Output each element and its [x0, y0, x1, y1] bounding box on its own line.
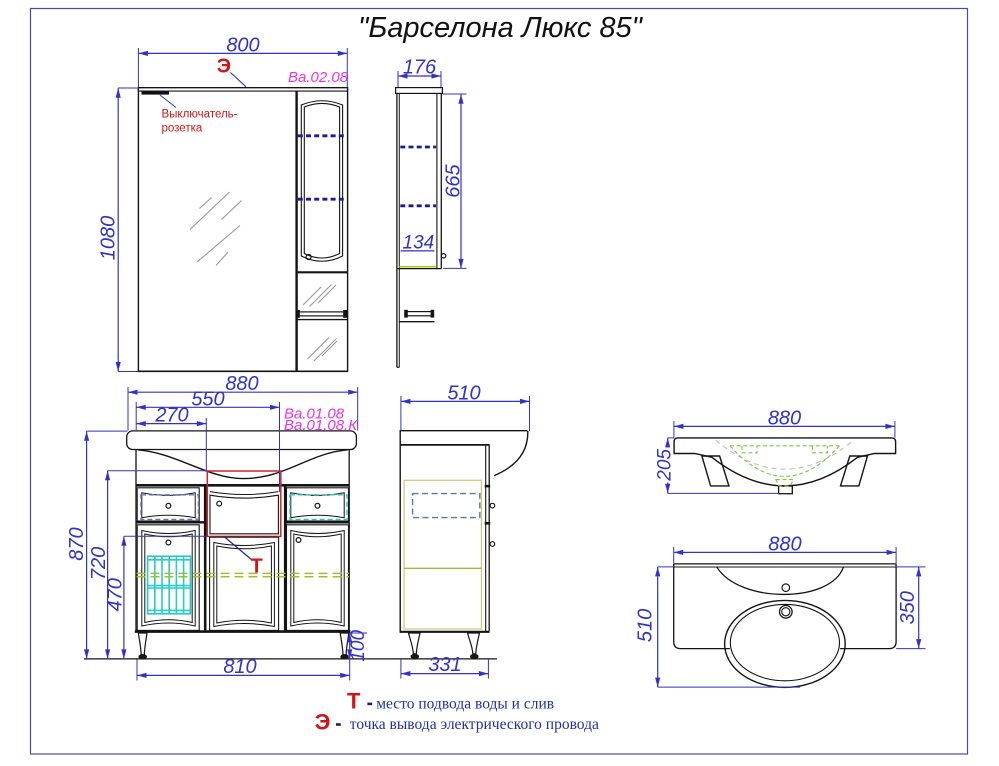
svg-text:510: 510: [635, 609, 657, 642]
svg-text:Ва.01.08.К: Ва.01.08.К: [284, 417, 358, 434]
svg-text:Т: Т: [251, 556, 263, 578]
svg-text:1080: 1080: [98, 216, 120, 261]
svg-text:350: 350: [897, 591, 919, 624]
svg-text:Т: Т: [347, 689, 361, 714]
svg-text:точка вывода электрического пр: точка вывода электрического провода: [350, 716, 599, 733]
svg-text:510: 510: [447, 382, 480, 404]
svg-text:Э: Э: [217, 56, 231, 78]
svg-text:720: 720: [88, 547, 110, 580]
svg-text:800: 800: [226, 35, 259, 57]
svg-text:270: 270: [154, 405, 188, 427]
svg-text:870: 870: [66, 527, 88, 560]
svg-text:810: 810: [223, 656, 256, 678]
svg-text:176: 176: [403, 57, 437, 79]
svg-text:665: 665: [443, 163, 465, 197]
svg-text:Выключатель-: Выключатель-: [162, 109, 238, 121]
svg-text:розетка: розетка: [162, 123, 203, 135]
svg-text:100: 100: [348, 630, 369, 662]
svg-text:205: 205: [655, 449, 676, 482]
svg-text:880: 880: [768, 533, 801, 555]
svg-text:Э: Э: [315, 710, 331, 735]
svg-text:место подвода воды и слив: место подвода воды и слив: [376, 696, 554, 713]
svg-text:880: 880: [768, 407, 801, 429]
svg-text:880: 880: [225, 373, 258, 395]
svg-text:"Барселона Люкс 85": "Барселона Люкс 85": [358, 12, 644, 44]
svg-text:550: 550: [191, 388, 224, 410]
svg-text:470: 470: [105, 578, 127, 611]
svg-text:331: 331: [428, 654, 461, 676]
svg-text:Ва.02.08: Ва.02.08: [288, 69, 349, 86]
